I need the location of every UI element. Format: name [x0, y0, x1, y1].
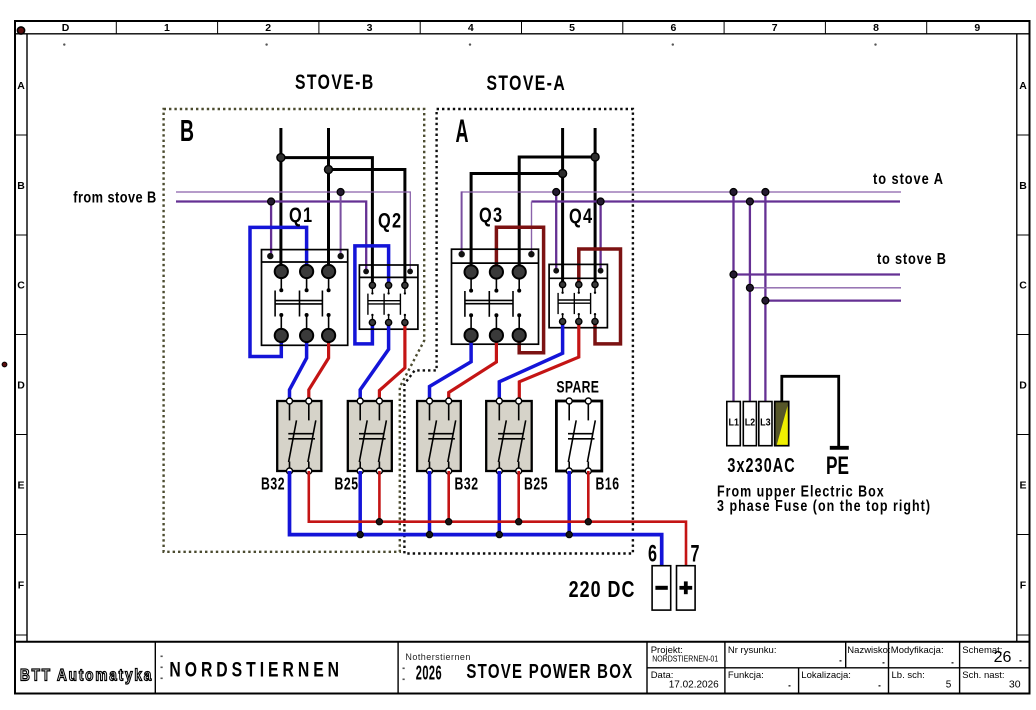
svg-text:17.02.2026: 17.02.2026: [669, 680, 719, 691]
svg-text:3x230AC: 3x230AC: [727, 454, 795, 477]
svg-text:Lokalizacja:: Lokalizacja:: [801, 670, 851, 681]
svg-text:7: 7: [691, 541, 700, 568]
svg-text:Nr rysunku:: Nr rysunku:: [728, 645, 777, 656]
svg-text:D: D: [62, 22, 70, 34]
svg-text:5: 5: [946, 680, 952, 691]
svg-text:A: A: [1019, 80, 1027, 92]
svg-text:C: C: [1019, 280, 1027, 292]
svg-text:30: 30: [1009, 679, 1021, 691]
svg-text:D: D: [1019, 380, 1027, 392]
svg-text:B: B: [17, 180, 25, 192]
svg-text:6: 6: [648, 541, 657, 568]
svg-text:STOVE-B: STOVE-B: [295, 70, 375, 94]
svg-text:26: 26: [994, 649, 1012, 666]
svg-text:B25: B25: [524, 474, 548, 494]
svg-text:2026: 2026: [416, 662, 442, 684]
svg-text:BTT Automatyka: BTT Automatyka: [20, 666, 153, 685]
svg-text:L2: L2: [745, 418, 756, 429]
svg-text:Q1: Q1: [289, 203, 313, 226]
svg-text:E: E: [1019, 480, 1026, 492]
svg-text:B: B: [180, 113, 194, 148]
svg-text:A: A: [456, 113, 469, 149]
svg-text:L1: L1: [729, 418, 740, 429]
svg-text:B16: B16: [596, 474, 620, 494]
svg-text:7: 7: [772, 22, 778, 34]
svg-text:Lb. sch:: Lb. sch:: [892, 670, 925, 681]
svg-text:B32: B32: [261, 474, 285, 494]
svg-text:SPARE: SPARE: [556, 379, 599, 397]
svg-text:STOVE POWER BOX: STOVE POWER BOX: [466, 660, 633, 683]
svg-text:Notherstiernen: Notherstiernen: [405, 652, 470, 662]
svg-text:B: B: [1019, 180, 1027, 192]
svg-text:C: C: [17, 280, 25, 292]
svg-text:5: 5: [569, 22, 575, 34]
svg-text:4: 4: [468, 22, 474, 34]
svg-text:Sch. nast:: Sch. nast:: [962, 670, 1004, 681]
svg-text:NORDSTIERNEN-01: NORDSTIERNEN-01: [652, 655, 718, 664]
svg-text:Nazwisko:: Nazwisko:: [847, 645, 890, 656]
svg-text:Modyfikacja:: Modyfikacja:: [891, 645, 944, 656]
svg-text:3: 3: [367, 22, 373, 34]
svg-text:NORDSTIERNEN: NORDSTIERNEN: [169, 657, 343, 681]
svg-text:STOVE-A: STOVE-A: [487, 71, 567, 95]
svg-text:B25: B25: [335, 474, 359, 494]
svg-text:B32: B32: [455, 474, 479, 494]
svg-text:E: E: [17, 480, 24, 492]
svg-text:from stove B: from stove B: [73, 189, 156, 207]
svg-text:to stove A: to stove A: [873, 171, 944, 189]
svg-text:Q2: Q2: [378, 209, 402, 232]
svg-text:PE: PE: [826, 452, 849, 480]
svg-text:to stove B: to stove B: [877, 251, 947, 269]
svg-text:6: 6: [670, 22, 676, 34]
svg-text:9: 9: [974, 22, 980, 34]
svg-text:3 phase Fuse (on the top right: 3 phase Fuse (on the top right): [717, 498, 931, 516]
svg-text:Q3: Q3: [479, 203, 503, 226]
svg-text:D: D: [17, 380, 25, 392]
svg-text:F: F: [18, 580, 25, 592]
svg-text:Funkcja:: Funkcja:: [728, 670, 764, 681]
svg-text:8: 8: [873, 22, 879, 34]
svg-text:F: F: [1020, 580, 1027, 592]
svg-text:220 DC: 220 DC: [569, 577, 636, 603]
svg-text:Q4: Q4: [569, 204, 593, 227]
svg-text:2: 2: [265, 22, 271, 34]
svg-text:L3: L3: [760, 418, 771, 429]
svg-text:1: 1: [164, 22, 170, 34]
svg-text:A: A: [17, 80, 25, 92]
